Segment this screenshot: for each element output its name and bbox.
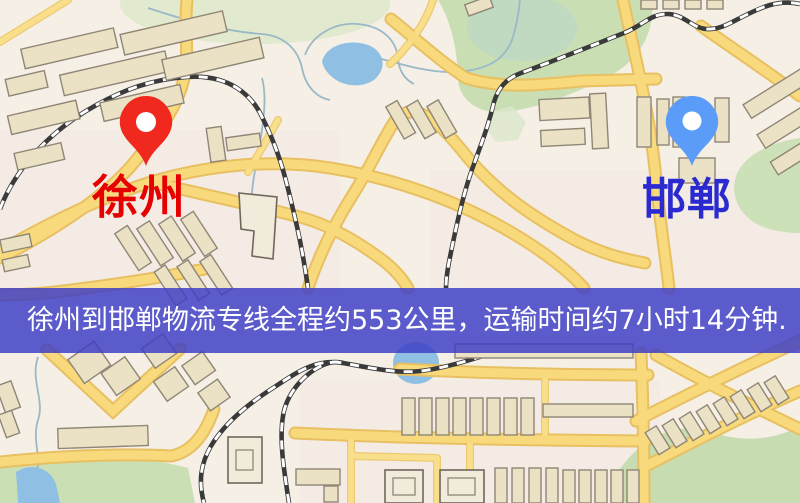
destination-city-label: 邯郸	[642, 178, 732, 222]
pin-center-dot	[136, 112, 156, 132]
route-info-banner: 徐州到邯郸物流专线全程约553公里，运输时间约7小时14分钟.	[0, 288, 800, 353]
route-info-text: 徐州到邯郸物流专线全程约553公里，运输时间约7小时14分钟.	[27, 288, 787, 353]
origin-city-label: 徐州	[92, 174, 186, 220]
map-screenshot: 徐州 邯郸 徐州到邯郸物流专线全程约553公里，运输时间约7小时14分钟.	[0, 0, 800, 503]
map-canvas[interactable]	[0, 0, 800, 503]
pin-center-dot	[683, 112, 702, 131]
